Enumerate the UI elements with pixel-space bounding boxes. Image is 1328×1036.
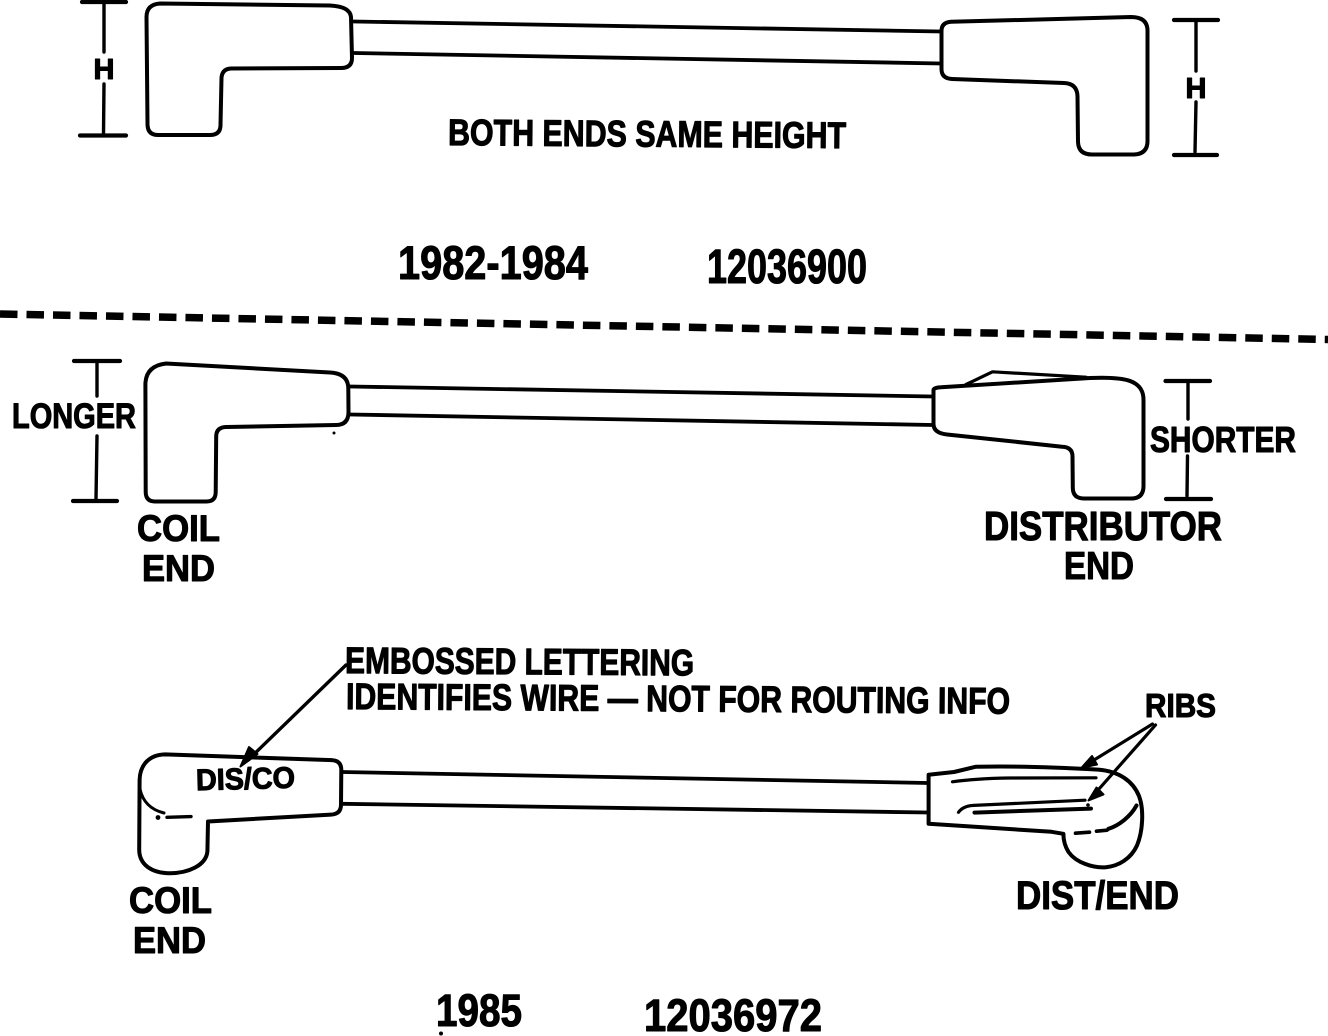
svg-text:END: END: [1064, 545, 1134, 588]
svg-text:END: END: [133, 920, 206, 961]
svg-text:BOTH ENDS SAME HEIGHT: BOTH ENDS SAME HEIGHT: [448, 112, 847, 156]
svg-text:1985: 1985: [436, 985, 522, 1036]
svg-text:12036972: 12036972: [644, 990, 822, 1036]
svg-text:LONGER: LONGER: [12, 397, 136, 436]
svg-text:H: H: [1186, 73, 1207, 105]
svg-text:1982-1984: 1982-1984: [398, 236, 588, 289]
svg-text:IDENTIFIES WIRE — NOT FOR ROUT: IDENTIFIES WIRE — NOT FOR ROUTING INFO: [346, 676, 1010, 722]
svg-text:DIST/END: DIST/END: [1016, 874, 1179, 918]
svg-text:DISTRIBUTOR: DISTRIBUTOR: [984, 503, 1222, 549]
svg-text:DIS/CO: DIS/CO: [196, 762, 296, 798]
svg-text:COIL: COIL: [129, 880, 212, 921]
svg-text:RIBS: RIBS: [1145, 687, 1216, 724]
svg-text:SHORTER: SHORTER: [1150, 419, 1296, 460]
svg-text:12036900: 12036900: [707, 241, 867, 294]
svg-text:COIL: COIL: [137, 508, 220, 549]
svg-text:H: H: [94, 54, 115, 86]
svg-text:END: END: [142, 548, 215, 589]
